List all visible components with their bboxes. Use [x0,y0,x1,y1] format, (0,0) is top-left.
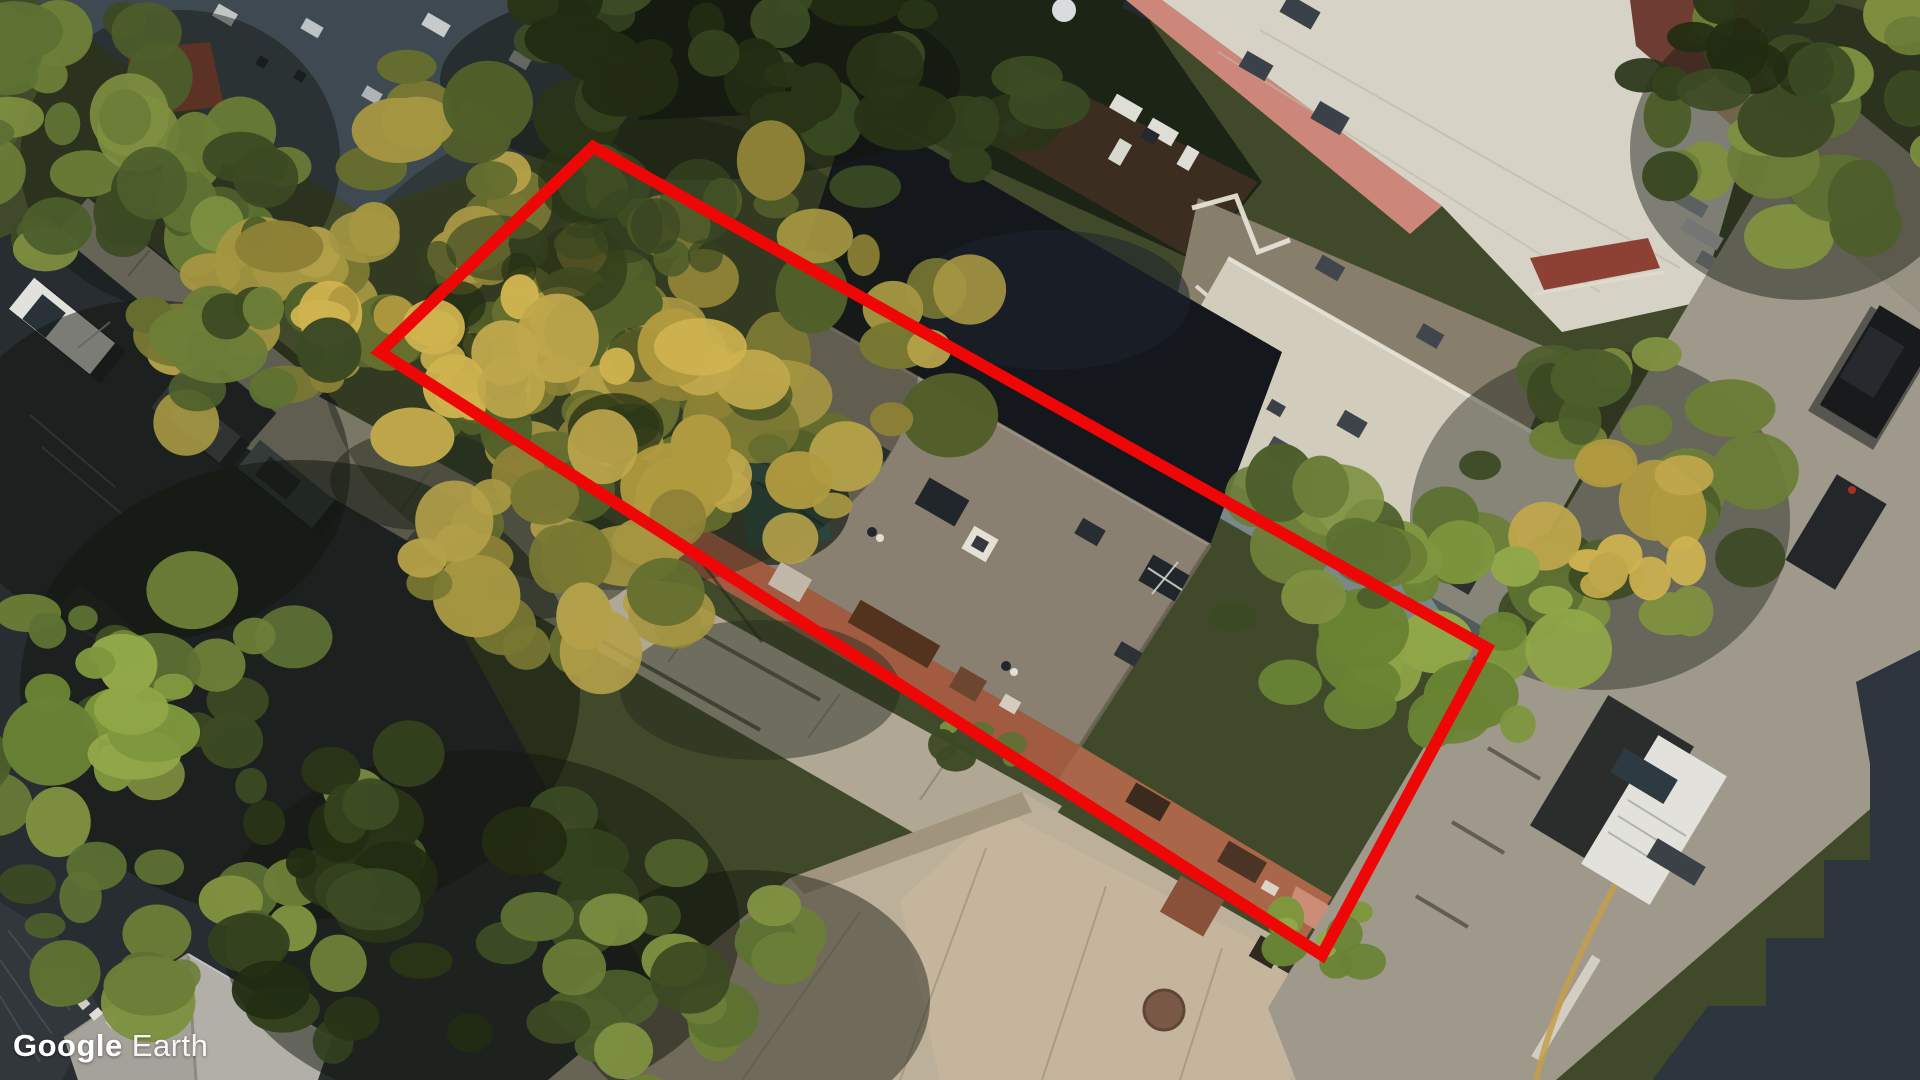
satellite-imagery-layer [0,0,1920,1080]
google-earth-watermark: GoogleEarth [13,1028,208,1064]
watermark-brand: Google [13,1028,123,1063]
google-earth-viewport: GoogleEarth [0,0,1920,1080]
aerial-imagery [0,0,1920,1080]
watermark-product: Earth [132,1028,209,1063]
